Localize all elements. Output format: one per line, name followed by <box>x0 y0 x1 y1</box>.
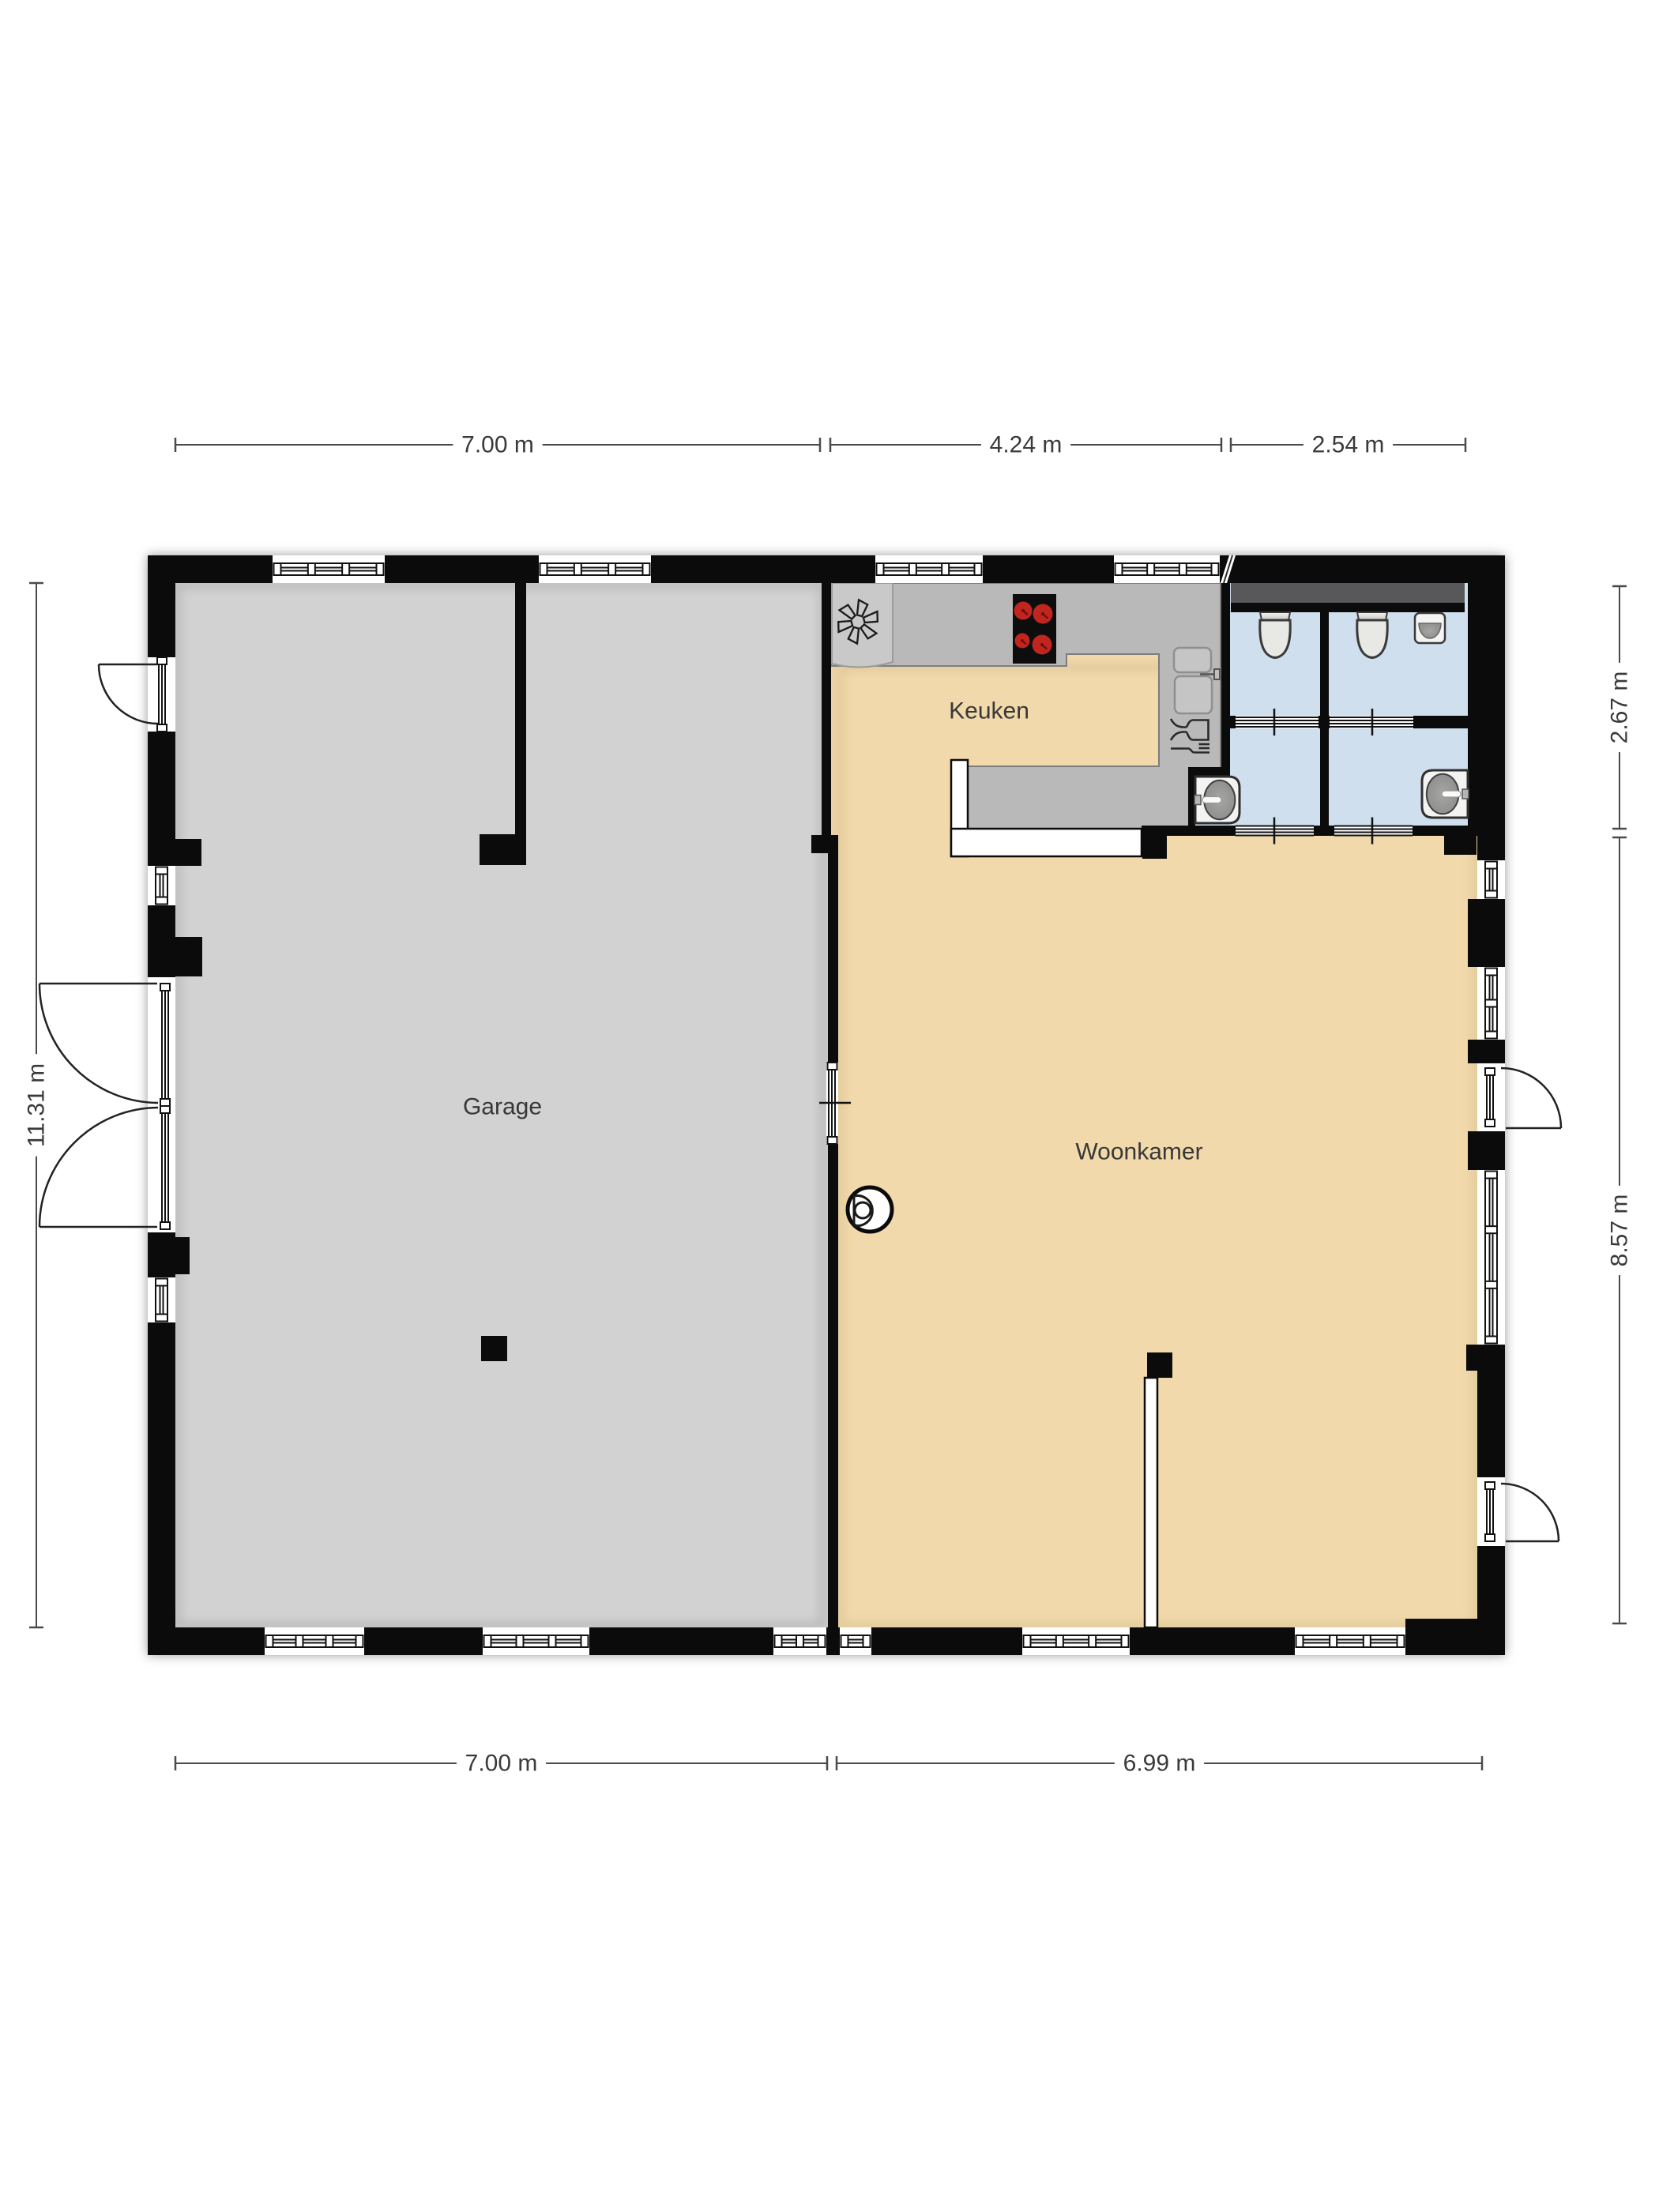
svg-text:8.57 m: 8.57 m <box>1607 1194 1633 1267</box>
svg-text:Woonkamer: Woonkamer <box>1075 1139 1202 1165</box>
svg-text:7.00 m: 7.00 m <box>461 432 534 458</box>
svg-text:Keuken: Keuken <box>949 698 1029 724</box>
svg-text:4.24 m: 4.24 m <box>990 432 1063 458</box>
svg-text:Garage: Garage <box>463 1094 542 1120</box>
svg-text:6.99 m: 6.99 m <box>1123 1751 1196 1777</box>
svg-text:2.54 m: 2.54 m <box>1312 432 1385 458</box>
svg-text:7.00 m: 7.00 m <box>465 1751 538 1777</box>
svg-text:11.31 m: 11.31 m <box>24 1063 50 1147</box>
svg-text:2.67 m: 2.67 m <box>1607 671 1633 744</box>
